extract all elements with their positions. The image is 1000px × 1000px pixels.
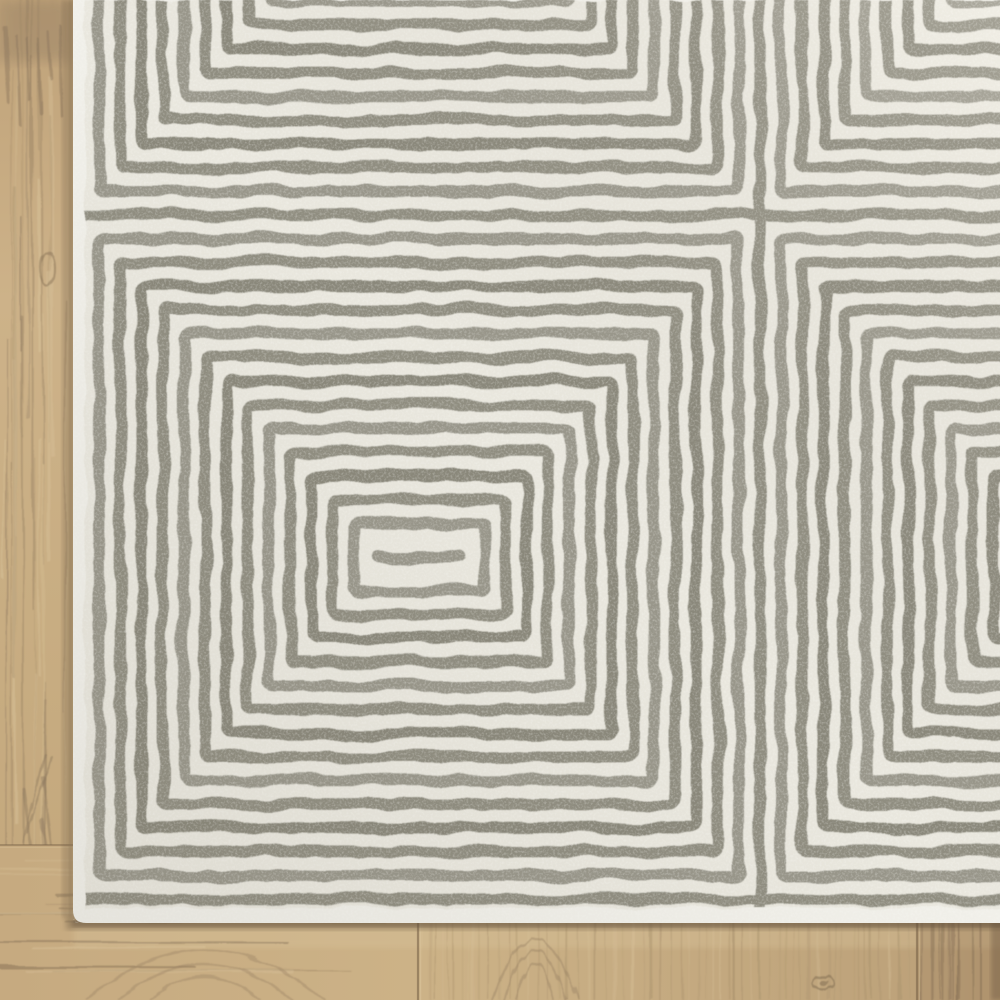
rug-lighting-tint [73, 0, 1000, 923]
wood-knot-core [819, 981, 828, 986]
wood-grain-streak [16, 69, 17, 536]
wood-grain-streak [32, 56, 34, 609]
photo-canvas: Close-up of the corner of an ivory and g… [0, 0, 1000, 1000]
wood-grain-streak [51, 78, 53, 458]
wood-grain-streak [22, 316, 24, 857]
wood-grain-streak [39, 439, 40, 676]
rug-product-photo: Close-up of the corner of an ivory and g… [0, 0, 1000, 1000]
wood-grain-streak [0, 943, 286, 944]
rug-left-edge-groove [69, 0, 73, 916]
area-rug [73, 0, 1000, 923]
wood-grain-streak [28, 971, 292, 972]
